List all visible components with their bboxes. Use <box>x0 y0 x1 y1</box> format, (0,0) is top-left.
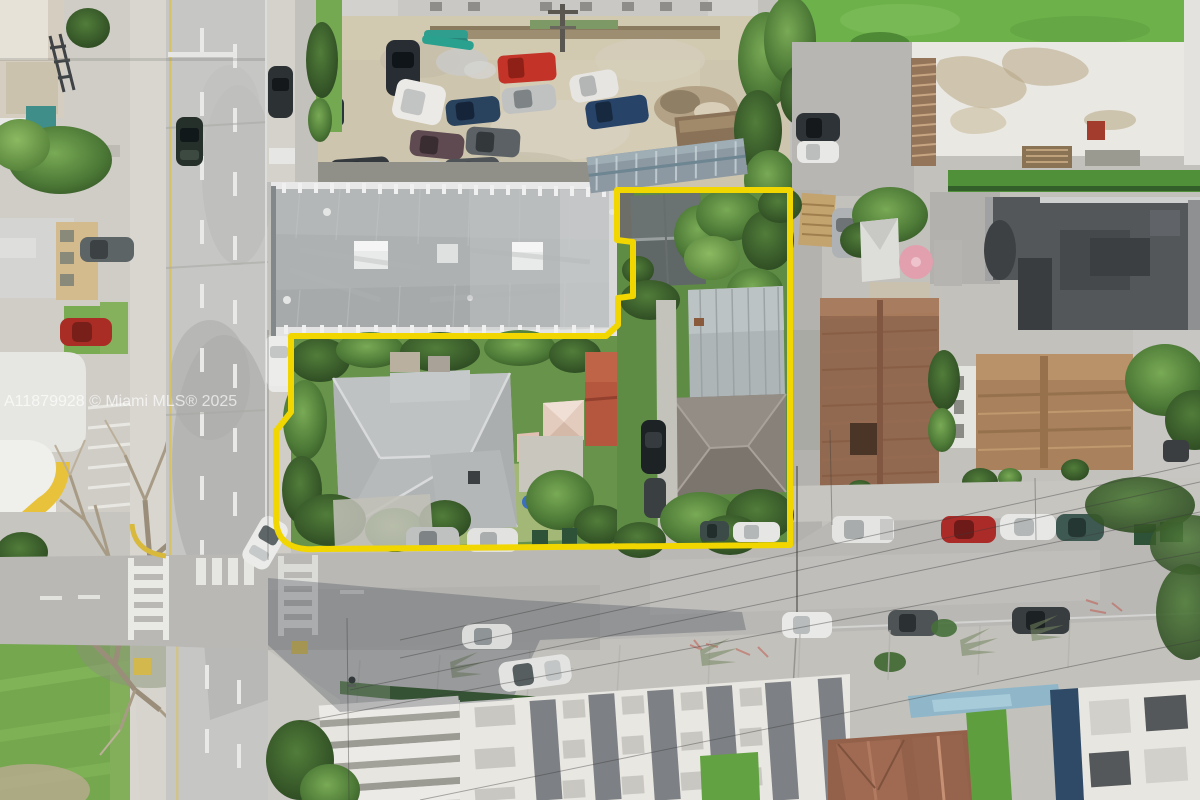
svg-text:A11879928 © Miami MLS® 2025: A11879928 © Miami MLS® 2025 <box>4 393 237 410</box>
